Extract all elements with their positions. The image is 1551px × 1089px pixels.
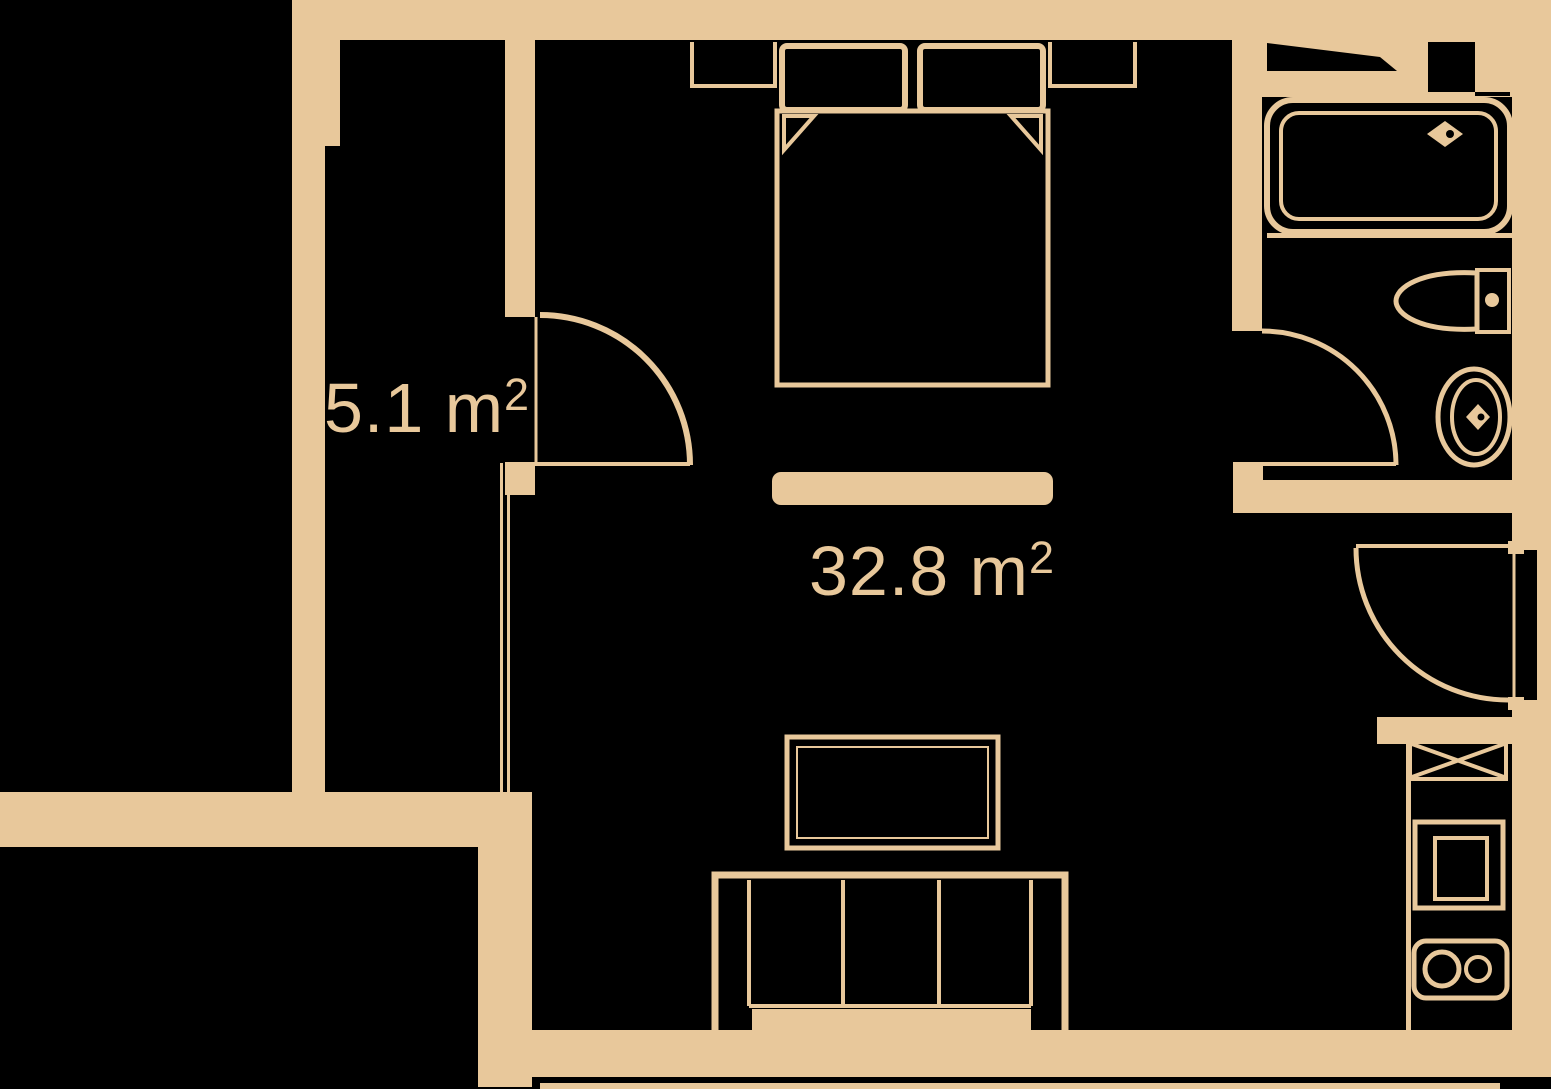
toilet-flush-button	[1485, 293, 1499, 307]
hallway-right-wall-upper	[505, 40, 535, 317]
hallway-door-arc	[540, 315, 690, 465]
wardrobe-niche	[1428, 42, 1475, 92]
cooktop-burner-small	[1466, 957, 1490, 981]
top-wall	[292, 0, 1267, 40]
double-bed-mattress	[777, 111, 1048, 385]
bathtub-partition-line	[1267, 233, 1513, 238]
wardrobe-niche-line	[1475, 92, 1510, 96]
tv-stand	[787, 737, 998, 848]
kitchen-strip-edge-line	[1406, 744, 1411, 1032]
entrance-door-arc	[1356, 548, 1508, 700]
entrance-door-jamb-bottom	[1508, 697, 1524, 710]
right-wall	[1512, 0, 1551, 1077]
bathroom-door-arc	[1262, 331, 1396, 465]
basin-faucet-dot	[1478, 414, 1485, 421]
entrance-door-opening	[1512, 550, 1537, 700]
left-wall	[292, 0, 325, 792]
hallway-partition-line-outer	[500, 463, 503, 793]
nightstand-right	[1050, 42, 1135, 86]
cooktop-burner-large	[1425, 952, 1459, 986]
bathtub-icon	[1267, 100, 1510, 232]
pillow-left-icon	[782, 46, 905, 110]
bed-sheet-fold-left	[784, 116, 814, 150]
bath-faucet-icon	[1427, 121, 1463, 147]
hallway-partition-line-inner	[507, 463, 510, 793]
entrance-door-jamb-top	[1508, 541, 1524, 554]
living-room-area-label: 32.8 m2	[809, 532, 1055, 610]
bathroom-bottom-wall	[1233, 480, 1513, 513]
sofa-backrest	[752, 1009, 1031, 1032]
bathroom-partition-wall	[1232, 40, 1262, 331]
bath-faucet-dot	[1446, 130, 1454, 138]
bottom-trim-line	[540, 1083, 1500, 1089]
oven-icon	[1415, 822, 1503, 908]
toilet-bowl-icon	[1396, 273, 1477, 330]
bathtub-inner-rim	[1281, 113, 1496, 219]
bottom-left-wall-bar	[0, 792, 532, 847]
bed-foot-bench	[772, 472, 1053, 505]
pillow-right-icon	[920, 46, 1043, 110]
left-lower-wall	[478, 847, 532, 1087]
bed-sheet-fold-right	[1011, 116, 1041, 150]
tv-stand-inner	[797, 747, 988, 838]
floor-plan: 5.1 m2 32.8 m2	[0, 0, 1551, 1089]
kitchen-strip-top-wall	[1377, 717, 1530, 744]
hallway-area-label: 5.1 m2	[324, 369, 530, 447]
oven-inner	[1435, 838, 1487, 899]
nightstand-left	[692, 42, 775, 86]
floor-plan-drawing: 5.1 m2 32.8 m2	[0, 0, 1551, 1089]
